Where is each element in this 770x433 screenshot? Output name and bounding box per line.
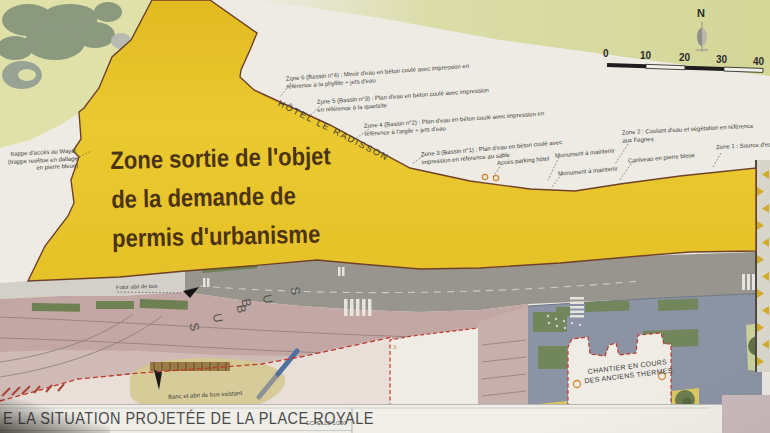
zone-overlay-label: Zone sortie de l'objet de la demande de … bbox=[110, 136, 333, 258]
zone-overlay-line3: permis d'urbanisme bbox=[112, 214, 333, 258]
building-number-label: 3. bbox=[393, 344, 398, 350]
corner-pavement bbox=[722, 395, 770, 433]
scale-tick-10: 10 bbox=[640, 50, 651, 61]
scale-tick-20: 20 bbox=[679, 52, 690, 63]
scale-tick-0: 0 bbox=[603, 48, 609, 59]
scale-tick-30: 30 bbox=[716, 54, 727, 65]
zone-overlay-line1: Zone sortie de l'objet bbox=[110, 136, 331, 180]
shrub-blob-hole bbox=[18, 69, 36, 81]
north-label: N bbox=[697, 7, 705, 19]
scale-note: ECHELLE 1/200 bbox=[306, 420, 346, 426]
scale-tick-40: 40 bbox=[753, 56, 764, 67]
zone-overlay-line2: de la demande de bbox=[111, 175, 332, 219]
plan-photo: Zone sortie de l'objet de la demande de … bbox=[0, 0, 770, 433]
